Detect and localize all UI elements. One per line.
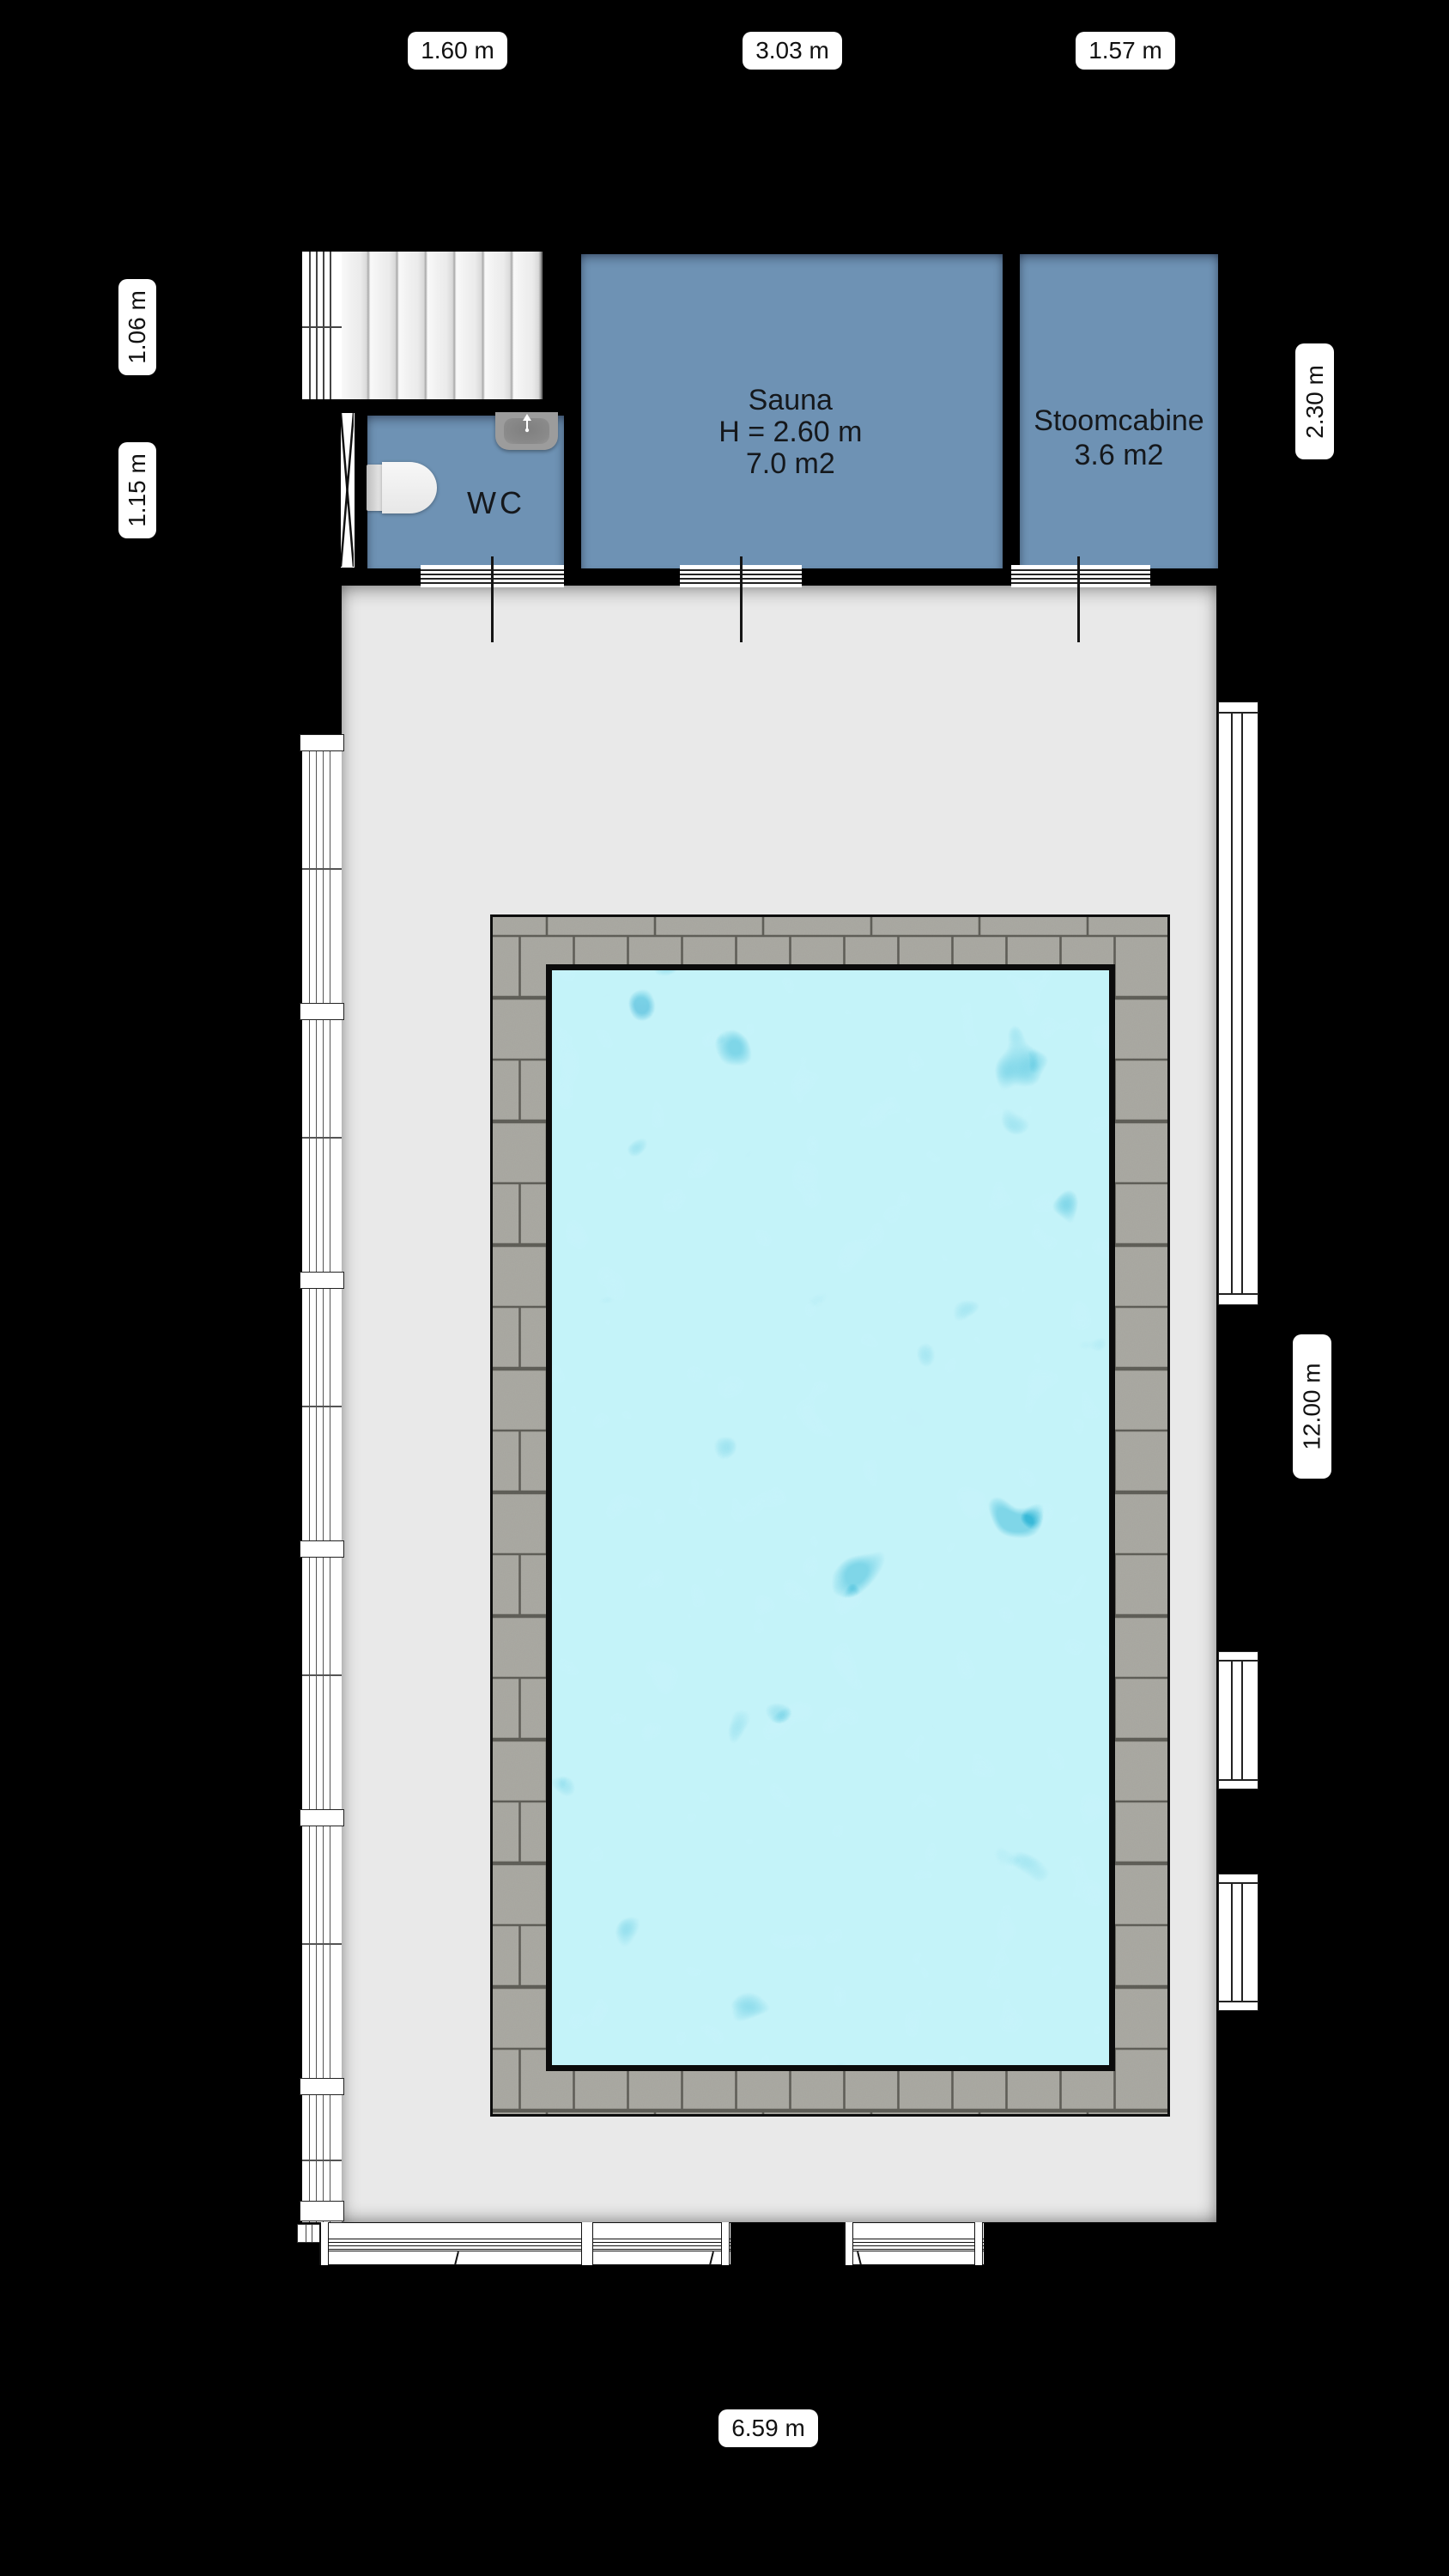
faucet-icon — [521, 414, 533, 433]
dimension-label-right-upper-text: 2.30 m — [1303, 365, 1327, 439]
toilet-icon — [367, 462, 437, 513]
dimension-label-left-1-text: 1.06 m — [125, 290, 149, 364]
door-leaf-wc — [491, 556, 494, 642]
bottom-door-assembly-right — [844, 2222, 985, 2265]
stoomcabine-name: Stoomcabine — [1034, 404, 1203, 438]
stoomcabine-area: 3.6 m2 — [1034, 438, 1203, 472]
sink-icon — [495, 412, 558, 450]
right-window-lower — [1218, 1874, 1258, 2011]
left-curtain-wall-window — [302, 734, 342, 2222]
room-label-wc: WC — [467, 485, 525, 521]
corner-window-cap — [297, 2224, 321, 2243]
dimension-label-top-1: 1.60 m — [408, 32, 507, 70]
floorplan: 1.60 m 3.03 m 1.57 m 1.06 m 1.15 m 2.30 … — [0, 0, 1449, 2576]
dimension-label-right-lower-text: 12.00 m — [1300, 1363, 1325, 1449]
door-leaf-sauna — [740, 556, 743, 642]
pool-water-texture — [552, 970, 1109, 2065]
room-stoomcabine: Stoomcabine 3.6 m2 — [1020, 254, 1218, 568]
dimension-label-bottom: 6.59 m — [718, 2409, 818, 2447]
dimension-label-top-3: 1.57 m — [1076, 32, 1175, 70]
dimension-label-right-lower: 12.00 m — [1293, 1334, 1331, 1479]
toilet-bowl — [382, 462, 437, 513]
bottom-door-assembly-left — [319, 2222, 731, 2265]
sauna-name: Sauna — [718, 385, 862, 416]
right-window-middle — [1218, 1651, 1258, 1789]
dimension-label-right-upper: 2.30 m — [1295, 343, 1334, 459]
door-x-icon — [340, 412, 355, 568]
room-label-sauna: Sauna H = 2.60 m 7.0 m2 — [718, 385, 862, 480]
sauna-height: H = 2.60 m — [718, 416, 862, 448]
room-label-stoomcabine: Stoomcabine 3.6 m2 — [1034, 404, 1203, 472]
dimension-label-left-1: 1.06 m — [118, 279, 156, 375]
dimension-label-left-2: 1.15 m — [118, 442, 156, 538]
sauna-area: 7.0 m2 — [718, 448, 862, 480]
dimension-label-top-2: 3.03 m — [743, 32, 842, 70]
stairs-window-icon — [302, 252, 342, 399]
door-x-lines — [341, 413, 354, 567]
right-window-large — [1218, 702, 1258, 1305]
door-threshold-stoomcabine — [1011, 565, 1150, 587]
dimension-label-left-2-text: 1.15 m — [125, 453, 149, 527]
room-sauna: Sauna H = 2.60 m 7.0 m2 — [581, 254, 1003, 568]
door-leaf-stoomcabine — [1077, 556, 1080, 642]
staircase — [342, 252, 543, 399]
pool-water — [546, 964, 1115, 2071]
